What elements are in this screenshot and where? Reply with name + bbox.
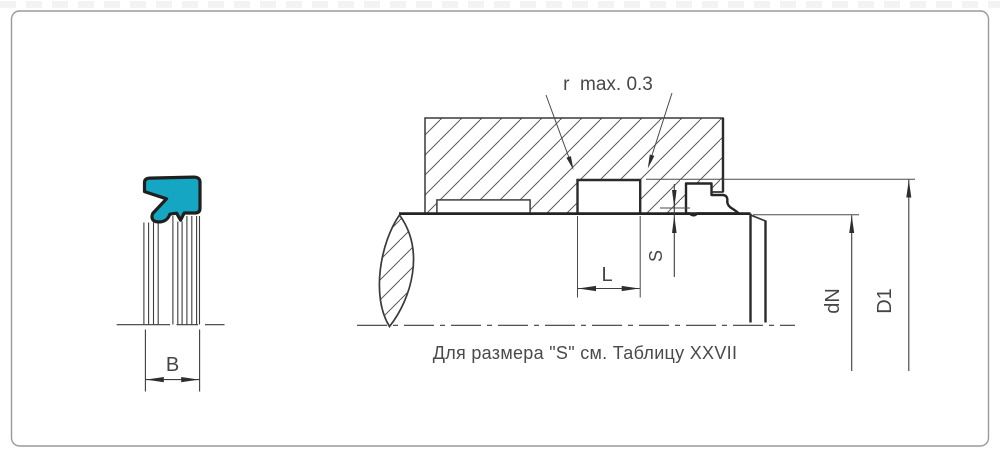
seal-profile — [145, 177, 201, 222]
label-dN: dN — [822, 288, 844, 314]
installation-view: r max. 0.3 L S — [357, 74, 915, 371]
shaft-break-section — [379, 215, 413, 327]
dimension-L: L — [578, 216, 641, 298]
guide-bush — [437, 200, 530, 214]
drawing-canvas: B r max. — [0, 0, 1000, 457]
seal-cross-section: B — [117, 177, 225, 391]
housing-section — [425, 118, 723, 214]
label-S: S — [646, 250, 666, 262]
figure-caption: Для размера "S" см. Таблицу XXVII — [433, 343, 738, 363]
radius-note-text: r max. 0.3 — [563, 74, 653, 95]
label-D1: D1 — [874, 288, 896, 314]
dimension-dN: dN — [753, 215, 859, 371]
shaft-end — [751, 214, 766, 323]
wiper-seal-profile — [686, 184, 739, 216]
dimension-B: B — [145, 330, 199, 392]
technical-drawing: B r max. — [0, 0, 1000, 457]
label-L: L — [601, 264, 612, 286]
seal-groove — [578, 180, 641, 214]
label-B: B — [166, 354, 179, 376]
seal-silhouette-lines — [144, 216, 200, 325]
